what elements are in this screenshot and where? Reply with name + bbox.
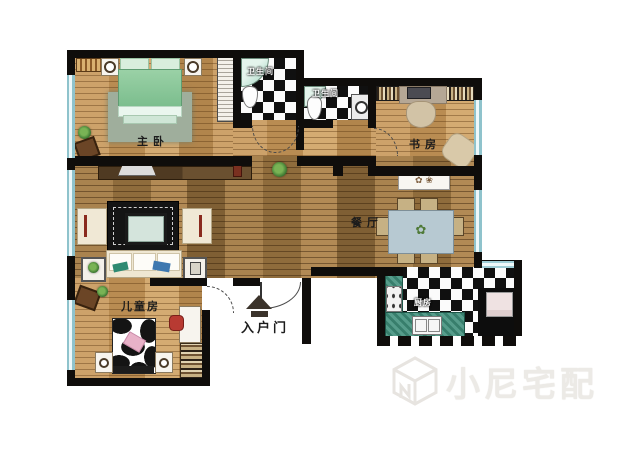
entry-arrow-icon — [245, 295, 273, 317]
wall — [377, 267, 385, 344]
bed-blanket — [118, 69, 182, 108]
children-bookshelf — [180, 343, 203, 380]
side-table-left — [81, 257, 106, 282]
wall — [67, 50, 304, 58]
wall — [233, 58, 241, 128]
coffee-table — [125, 213, 167, 245]
room-label-bathroom-main: 卫生间 — [247, 66, 274, 77]
sink-basin — [428, 319, 440, 332]
tv — [118, 165, 156, 176]
bedroom-dresser — [76, 58, 102, 72]
kitchen-sink — [412, 316, 442, 335]
bed-bench — [123, 115, 177, 124]
stove — [386, 286, 402, 312]
watermark: 小尼宅配 — [392, 356, 598, 406]
room-label-dining: 餐厅 — [351, 214, 383, 230]
sofa — [106, 250, 182, 278]
wall — [368, 166, 474, 176]
plant-icon — [97, 286, 108, 297]
plant-icon — [272, 162, 287, 177]
window — [474, 100, 482, 155]
window — [67, 170, 75, 256]
room-label-master-bedroom: 主卧 — [137, 133, 169, 149]
master-bed — [118, 56, 182, 122]
room-label-children-room: 儿童房 — [121, 298, 160, 314]
centerpiece-flowers-icon: ✿ — [416, 223, 427, 238]
living-rug — [107, 201, 179, 251]
window — [67, 300, 75, 370]
wall — [514, 260, 522, 344]
cube-n-logo-icon — [392, 356, 438, 406]
refrigerator — [486, 292, 513, 317]
nightstand-right — [184, 58, 202, 76]
monitor — [407, 87, 431, 99]
wall — [233, 278, 260, 286]
wall — [302, 278, 311, 344]
window — [474, 190, 482, 252]
wall — [67, 156, 252, 166]
wall — [233, 120, 252, 128]
children-nightstand-right — [155, 352, 173, 373]
desk-chair — [406, 101, 436, 128]
armchair-right — [182, 208, 212, 244]
room-label-bathroom-second: 卫生间 — [312, 88, 339, 99]
nightstand-left — [101, 58, 119, 76]
sink-basin — [415, 319, 427, 332]
children-rug — [75, 352, 102, 377]
wall — [150, 278, 207, 286]
wall — [333, 156, 343, 176]
children-chair-red — [169, 315, 184, 331]
kitchen-balcony-rail — [377, 336, 522, 346]
watermark-brand: 小尼宅配 — [446, 357, 598, 406]
room-label-entrance: 入户门 — [241, 317, 289, 336]
armchair-left — [77, 208, 107, 245]
pink-pillow — [123, 331, 146, 353]
wall — [296, 78, 482, 86]
children-door-arc — [207, 286, 234, 313]
dining-table: ✿ — [388, 210, 454, 254]
wall — [296, 120, 333, 128]
entry-arrow-head — [246, 295, 272, 309]
floor-plan: ✿ ❀ ✿ — [0, 0, 640, 452]
room-label-study: 书房 — [409, 136, 441, 152]
wall — [368, 86, 376, 128]
children-bed-footboard — [112, 366, 154, 373]
room-label-kitchen: 厨房 — [414, 297, 432, 308]
wall — [311, 267, 403, 276]
wall — [67, 378, 210, 386]
wall — [202, 310, 210, 386]
window — [482, 261, 514, 268]
window — [67, 75, 75, 158]
